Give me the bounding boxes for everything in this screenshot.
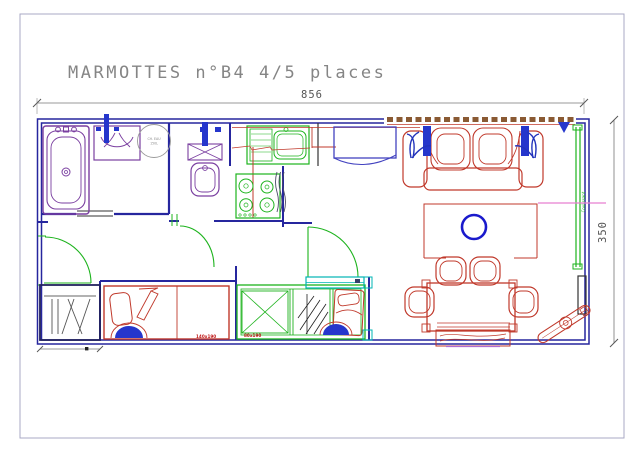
bunk-panel-x [242, 291, 288, 333]
fridge [312, 127, 396, 164]
sofa-throw-icon [423, 126, 431, 156]
soap-dish-icon [114, 127, 119, 131]
sliding-bay-door: Coulissant [538, 125, 606, 269]
sliding-door-label: Coulissant [581, 191, 586, 212]
wall-vent-icon [215, 127, 221, 132]
kitchen [232, 126, 420, 218]
water-heater: CH. EAU 150L [138, 125, 171, 158]
water-heater-label-2: 150L [150, 142, 158, 146]
dimension-width: 856 [33, 89, 588, 114]
kitchen-sink [247, 126, 309, 164]
door-arc-living [308, 227, 358, 277]
water-heater-label-1: CH. EAU [147, 137, 161, 141]
dimension-height: 350 [597, 116, 618, 347]
soap-dish-icon [96, 127, 101, 131]
master-bedroom: 140x190 [104, 286, 229, 339]
master-bed-size-label: 140x190 [196, 334, 216, 339]
plan-title: MARMOTTES n°B4 4/5 places [68, 63, 386, 83]
wc-window-icon [202, 122, 208, 146]
bedroom2: 80x190 [237, 277, 372, 340]
door-arc-bedroom2 [180, 226, 214, 267]
floorplan-page: MARMOTTES n°B4 4/5 places 856 350 [0, 0, 640, 454]
bathroom: CH. EAU 150L [43, 114, 171, 214]
living-room-window-band [384, 113, 576, 133]
bathtub [43, 126, 89, 214]
bunk-bed-size-label: 80x190 [244, 333, 261, 338]
floorplan-drawing: MARMOTTES n°B4 4/5 places 856 350 [0, 0, 640, 454]
dimension-width-label: 856 [301, 89, 323, 101]
wc-room [188, 122, 222, 196]
dimension-height-label: 350 [597, 221, 609, 243]
pillow [109, 292, 133, 326]
living-room: Coulissant [403, 125, 606, 347]
guitar [536, 303, 593, 346]
wardrobe [37, 285, 103, 352]
dining-table [422, 280, 517, 332]
basin-window-icon [104, 114, 109, 143]
pillow [337, 293, 359, 307]
bedside-lamp [323, 324, 349, 335]
cooktop [236, 174, 280, 218]
coffee-table [462, 215, 486, 239]
washbasin [94, 114, 140, 160]
bedside-lamp [115, 326, 143, 338]
interior-walls [38, 123, 369, 340]
rug [424, 204, 537, 258]
sofa [403, 126, 543, 190]
wardrobe-dimension [37, 346, 103, 352]
doors [38, 226, 358, 285]
folded-blanket [137, 291, 158, 320]
window-corner-mark [558, 122, 570, 133]
ladder-hatch [298, 294, 328, 334]
door-arc-hall [38, 236, 91, 285]
toilet [191, 163, 219, 196]
dining-chairs [405, 257, 538, 317]
